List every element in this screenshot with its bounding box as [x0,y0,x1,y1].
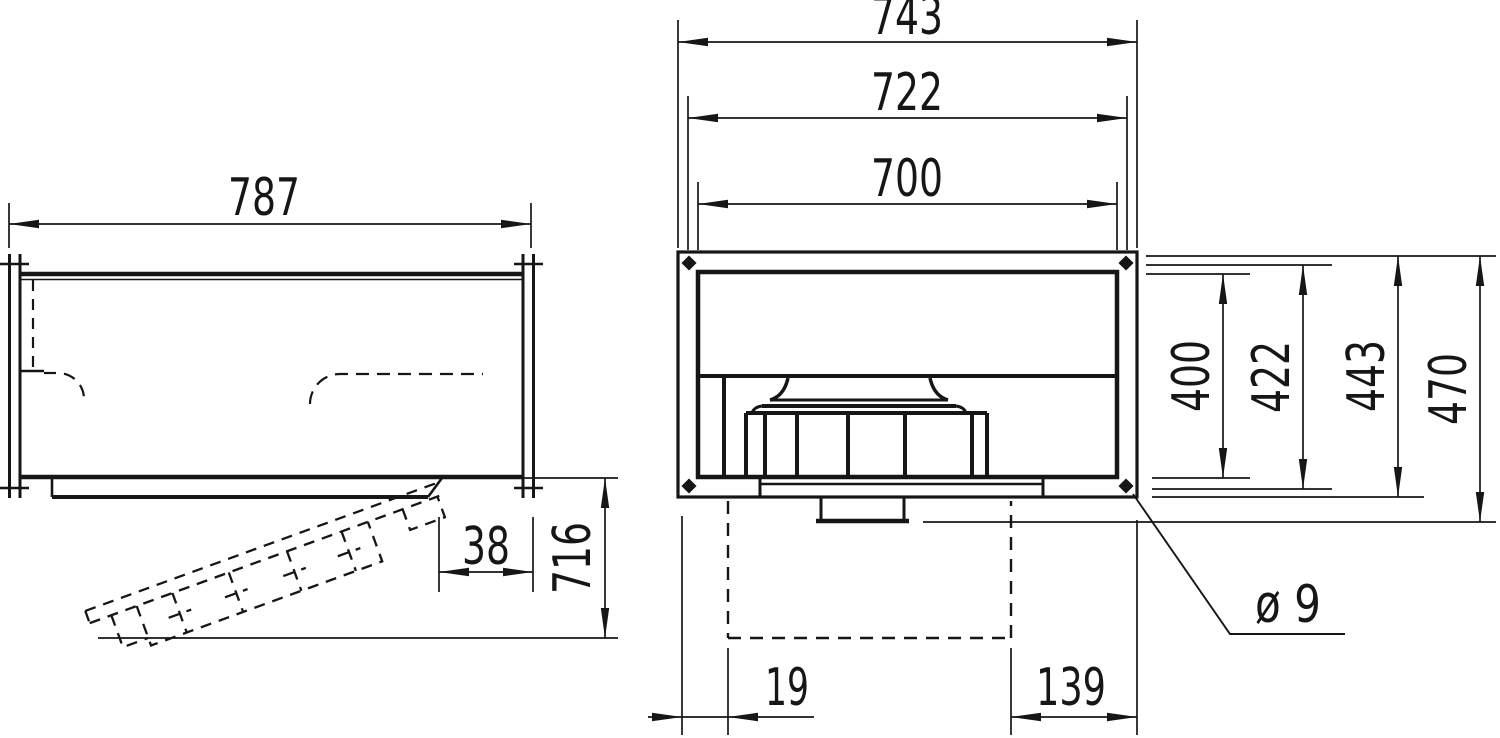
dim-label-787: 787 [228,168,300,228]
dim-label-400: 400 [1162,340,1222,412]
dim-outer-width: 743 [678,0,1137,248]
dim-duct-width: 700 [698,149,1117,250]
side-view: 787 38 716 [0,168,618,663]
dim-label-19: 19 [765,658,809,718]
dim-label-716: 716 [543,522,603,594]
dim-panel-gap: 38 [439,517,533,592]
dim-bolt-height: 422 [1242,265,1307,489]
front-view-fan-assembly [698,376,1117,521]
dim-label-470: 470 [1419,353,1479,425]
dim-duct-height: 400 [1162,274,1227,478]
dim-label-139: 139 [1036,658,1106,718]
front-view: 743 722 700 [648,0,1496,735]
dim-outer-height: 443 [1337,256,1402,497]
side-view-swing-open-assembly [85,482,459,663]
dim-label-443: 443 [1337,340,1397,412]
dim-label-38: 38 [462,517,510,577]
dim-label-700: 700 [871,149,943,209]
dim-bottom-offsets: 19 139 [648,516,1137,735]
dim-label-422: 422 [1242,341,1302,413]
technical-drawing: 787 38 716 [0,0,1500,738]
dim-label-722: 722 [871,63,943,123]
side-view-body [0,254,543,498]
hole-diameter-note: ø 9 [1133,494,1345,635]
dim-label-hole: ø 9 [1255,575,1321,635]
corner-screw-icon [683,480,696,493]
corner-screw-icon [1120,257,1133,270]
dim-total-height: 470 [1419,256,1484,522]
dim-label-743: 743 [871,0,943,47]
side-view-hidden-lines [20,280,483,404]
corner-screw-icon [683,257,696,270]
dim-side-width: 787 [9,168,531,248]
corner-screw-icon [1120,480,1133,493]
